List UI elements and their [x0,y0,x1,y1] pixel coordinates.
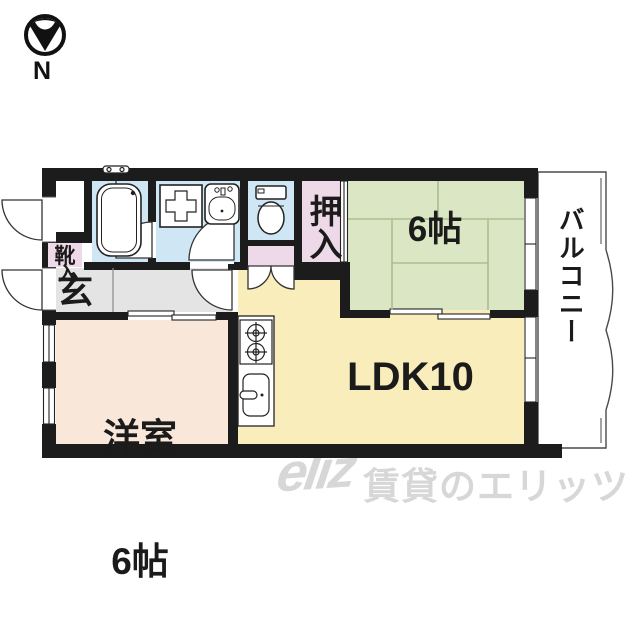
label-oshiire: 押入 [302,186,340,268]
floorplan-page: { "compass": { "label": "N", "icon": "no… [0,0,640,640]
label-tatami-room: 6帖 [385,212,485,249]
label-ldk: LDK10 [328,356,493,398]
label-shoe-cabinet-2: 入 [58,265,77,285]
compass-n-label: N [33,57,51,86]
watermark-logo: eliz [274,441,358,500]
front-door-arc [2,270,42,310]
room-storage-left [56,181,84,232]
room-toilet [248,181,294,240]
compass-north-icon [22,12,68,58]
watermark-text: 賃貸のエリッツ [363,456,629,510]
western-room-line1: 洋室 [70,417,210,458]
label-western-room: 洋室 6帖 [70,334,210,624]
western-room-line2: 6帖 [70,541,210,582]
watermark: eliz 賃貸のエリッツ [278,444,629,510]
label-balcony: バルコニー [556,206,583,356]
entry-storage-door-arc [2,200,42,240]
room-bathroom [92,181,148,262]
closet-small [248,246,294,266]
room-washroom [156,181,240,262]
